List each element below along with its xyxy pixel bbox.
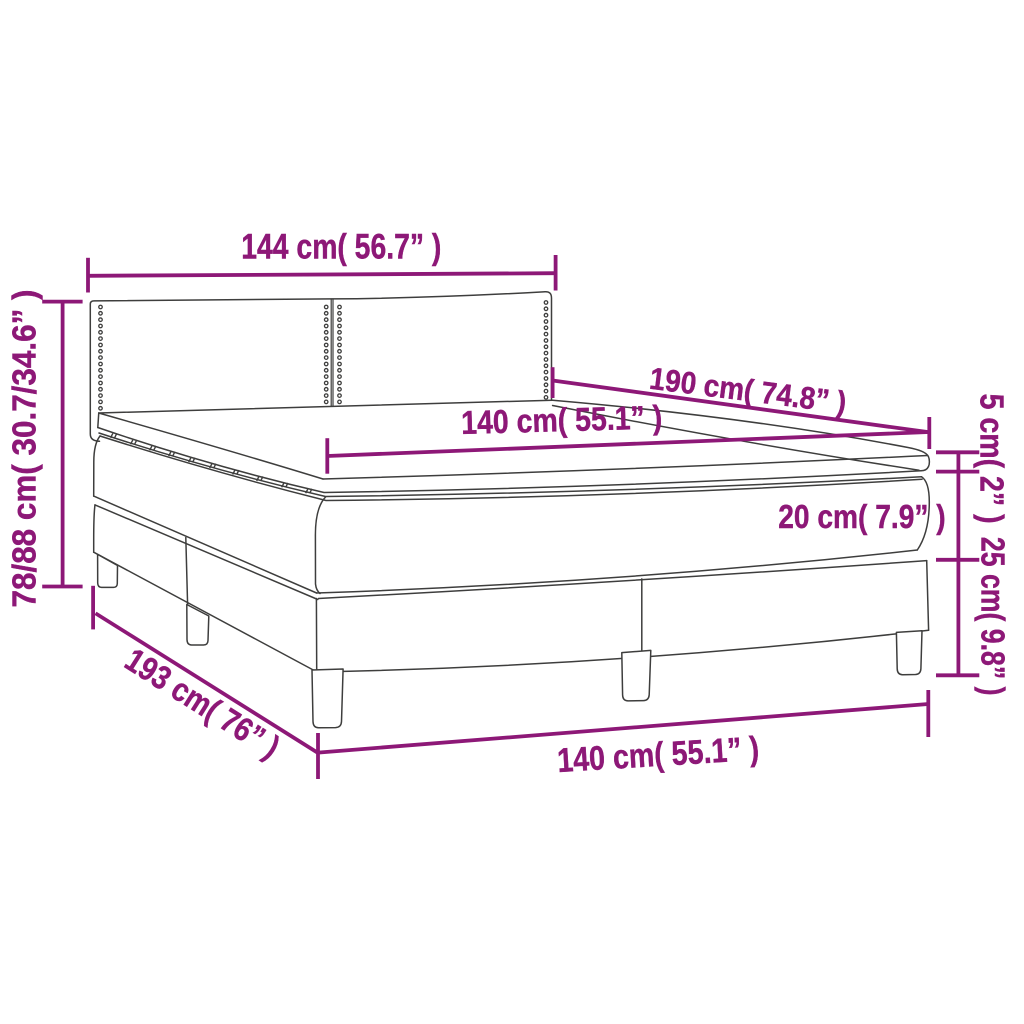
svg-text:140 cm( 55.1” ): 140 cm( 55.1” )	[461, 398, 663, 441]
svg-text:5 cm( 2” ): 5 cm( 2” )	[974, 394, 1011, 524]
svg-text:20 cm( 7.9” ): 20 cm( 7.9” )	[778, 498, 946, 535]
svg-text:78/88 cm( 30.7/34.6” ): 78/88 cm( 30.7/34.6” )	[6, 290, 43, 608]
svg-text:144 cm( 56.7” ): 144 cm( 56.7” )	[241, 228, 441, 267]
svg-text:25 cm( 9.8” ): 25 cm( 9.8” )	[975, 537, 1012, 696]
